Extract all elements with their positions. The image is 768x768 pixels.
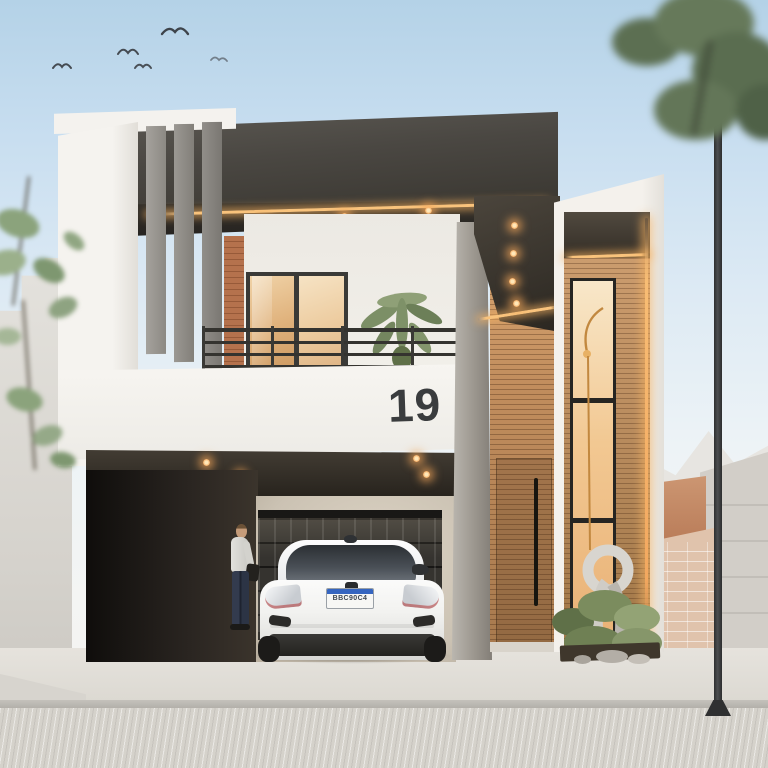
concrete-pillar — [452, 222, 492, 660]
car-antenna — [344, 535, 357, 543]
carport-downlight — [423, 471, 430, 478]
man-legs — [232, 571, 249, 626]
branch-leaf — [0, 246, 28, 279]
car-bumper-crease — [270, 624, 434, 628]
bird-icon — [118, 50, 138, 54]
floor-lamp — [573, 300, 613, 570]
facade-fin — [174, 124, 194, 362]
branch-leaf — [49, 450, 77, 470]
right-volume-soffit — [564, 212, 650, 258]
standing-man — [224, 524, 262, 634]
railing-post — [202, 326, 205, 374]
car-taillight-left — [264, 584, 302, 610]
bird-icon — [162, 28, 188, 34]
carport-downlight — [203, 459, 210, 466]
downlight — [510, 250, 517, 257]
foreground-branch — [0, 170, 96, 490]
downlight — [511, 222, 518, 229]
road-texture — [0, 708, 768, 768]
downlight — [513, 300, 520, 307]
carport-downlight — [413, 455, 420, 462]
bird-icon — [53, 64, 71, 68]
car-mirror — [412, 564, 429, 575]
house-number: 19 — [387, 377, 442, 433]
branch-leaf — [29, 253, 69, 288]
birds-flock — [35, 18, 265, 88]
railing-post — [271, 326, 274, 374]
architectural-render: 19 BBC90C4 — [0, 0, 768, 768]
branch-stem — [22, 300, 36, 470]
car-wheel-right — [424, 636, 446, 662]
car-diffuser — [268, 634, 436, 656]
rock — [628, 654, 650, 664]
bird-icon — [135, 65, 151, 68]
downlight — [425, 207, 432, 214]
rock — [574, 655, 591, 664]
license-plate: BBC90C4 — [326, 588, 374, 609]
plate-text: BBC90C4 — [327, 595, 373, 602]
bird-icon — [211, 58, 227, 62]
led-strip-vertical — [645, 218, 648, 642]
car-rear-window — [286, 545, 416, 583]
door-handle — [534, 478, 538, 606]
man-head — [236, 524, 247, 538]
branch-leaf — [0, 328, 21, 345]
car-taillight-right — [402, 584, 440, 610]
branch-leaf — [60, 228, 87, 254]
branch-leaf — [45, 293, 80, 323]
shrub-bed — [542, 580, 674, 668]
branch-leaf — [4, 384, 46, 416]
branch-stem — [12, 176, 30, 305]
tree-canopy — [596, 0, 768, 190]
facade-fin — [146, 126, 166, 354]
car-wheel-left — [258, 636, 280, 662]
plate-top-band — [327, 589, 373, 594]
car: BBC90C4 — [260, 538, 444, 664]
rock — [596, 650, 628, 663]
branch-leaf — [30, 421, 66, 449]
downlight — [509, 278, 516, 285]
branch-leaf — [0, 204, 43, 243]
man-shoes — [230, 624, 250, 630]
